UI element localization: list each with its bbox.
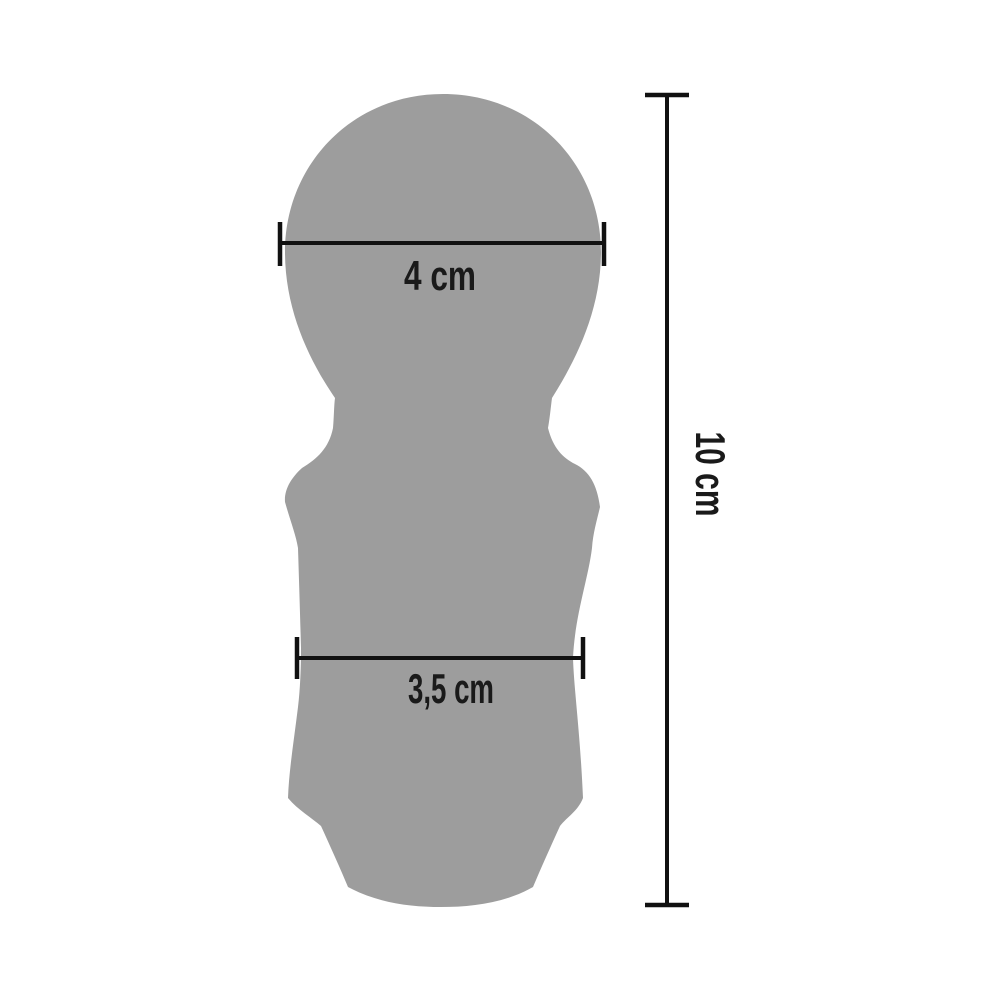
- total-height-label: 10 cm: [687, 432, 734, 517]
- diagram-canvas: 4 cm 3,5 cm 10 cm: [0, 0, 1000, 1000]
- head-width-label: 4 cm: [404, 252, 476, 299]
- total-height-dimension: 10 cm: [645, 95, 734, 905]
- body-width-label: 3,5 cm: [408, 665, 494, 712]
- dimension-diagram: 4 cm 3,5 cm 10 cm: [0, 0, 1000, 1000]
- product-silhouette: [285, 94, 601, 907]
